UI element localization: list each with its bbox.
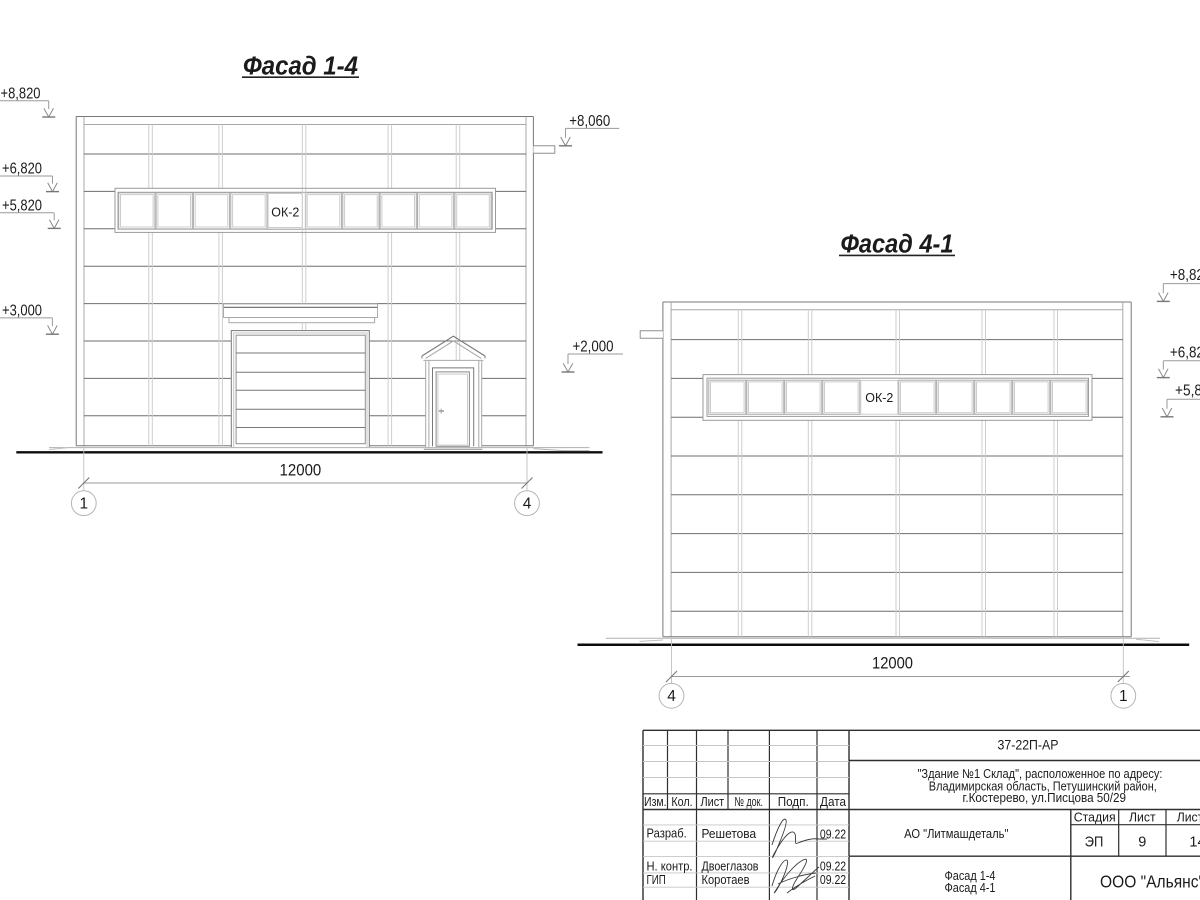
- svg-text:+6,82: +6,82: [1170, 344, 1200, 361]
- svg-text:Дата: Дата: [820, 794, 847, 809]
- svg-text:+8,820: +8,820: [1, 85, 41, 102]
- svg-text:Стадия: Стадия: [1074, 809, 1116, 824]
- svg-text:№ док.: № док.: [734, 794, 763, 809]
- svg-text:14: 14: [1189, 835, 1200, 851]
- svg-text:Лист: Лист: [1129, 809, 1156, 824]
- svg-text:4: 4: [667, 688, 676, 705]
- svg-text:Фасад 4-1: Фасад 4-1: [945, 880, 996, 895]
- svg-text:Кол.: Кол.: [671, 794, 692, 809]
- svg-text:+8,82: +8,82: [1170, 267, 1200, 284]
- svg-text:Фасад 4-1: Фасад 4-1: [841, 231, 954, 259]
- svg-text:1: 1: [1119, 688, 1128, 705]
- svg-text:Лист: Лист: [1177, 809, 1200, 824]
- svg-text:г.Костерево, ул.Писцова 50/29: г.Костерево, ул.Писцова 50/29: [963, 790, 1127, 805]
- svg-text:1: 1: [79, 496, 88, 513]
- svg-text:Решетова: Решетова: [702, 826, 757, 841]
- svg-text:ОК-2: ОК-2: [865, 390, 893, 405]
- svg-text:ГИП: ГИП: [647, 872, 666, 887]
- svg-text:ЭП: ЭП: [1085, 835, 1104, 851]
- svg-text:Лист: Лист: [700, 794, 724, 809]
- svg-text:+5,8: +5,8: [1175, 383, 1200, 400]
- svg-text:Фасад 1-4: Фасад 1-4: [243, 53, 358, 81]
- svg-text:АО "Литмашдеталь": АО "Литмашдеталь": [904, 826, 1009, 841]
- svg-text:37-22П-АР: 37-22П-АР: [998, 737, 1059, 753]
- svg-text:Подп.: Подп.: [778, 794, 809, 809]
- svg-text:+8,060: +8,060: [569, 113, 610, 130]
- svg-text:+5,820: +5,820: [2, 197, 42, 214]
- svg-text:12000: 12000: [872, 653, 913, 672]
- svg-text:9: 9: [1138, 835, 1146, 851]
- svg-text:Разраб.: Разраб.: [647, 825, 687, 840]
- svg-text:+2,000: +2,000: [573, 339, 614, 356]
- svg-text:ООО "Альянс": ООО "Альянс": [1100, 872, 1200, 892]
- svg-text:+3,000: +3,000: [2, 303, 42, 320]
- svg-text:12000: 12000: [280, 461, 322, 480]
- svg-text:09.22: 09.22: [820, 872, 846, 887]
- svg-text:Коротаев: Коротаев: [702, 872, 750, 887]
- svg-text:4: 4: [523, 496, 532, 513]
- svg-text:+6,820: +6,820: [2, 161, 42, 178]
- svg-text:Изм.: Изм.: [644, 794, 667, 809]
- svg-text:ОК-2: ОК-2: [271, 204, 299, 219]
